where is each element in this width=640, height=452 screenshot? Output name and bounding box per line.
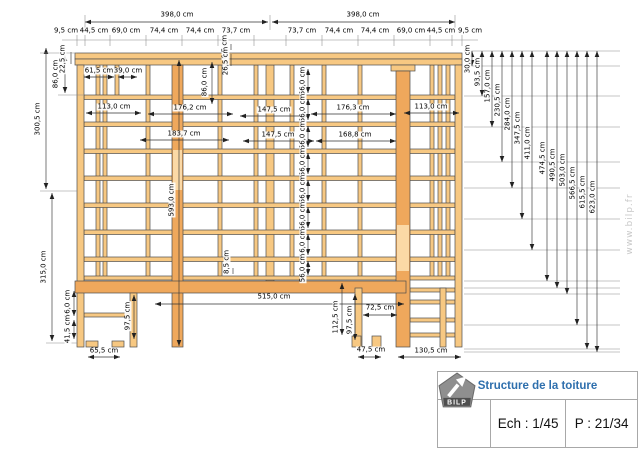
dimension-label: 30,0 cm: [465, 44, 472, 74]
dimension-label: 176,3 cm: [336, 105, 371, 112]
dimension-label: 47,5 cm: [356, 347, 386, 354]
dimension-label: 97,5 cm: [347, 305, 354, 335]
dimension-label: 69,0 cm: [396, 28, 426, 35]
dimension-label: 474,5 cm: [540, 141, 547, 176]
dimension-label: 44,5 cm: [426, 28, 456, 35]
scale-value: Ech : 1/45: [491, 400, 566, 447]
dimension-label: 157,0 cm: [485, 69, 492, 104]
dimension-label: 56,0 cm: [300, 174, 307, 204]
dimension-label: 593,0 cm: [169, 183, 176, 218]
dimension-label: 22,5 cm: [60, 44, 67, 74]
dimension-label: 86,0 cm: [53, 59, 60, 89]
title-block-row: BILP Ech : 1/45 P : 21/34: [438, 400, 637, 447]
dimension-label: 130,5 cm: [414, 348, 449, 355]
dimension-label: 315,0 cm: [41, 250, 48, 285]
dimension-label: 300,5 cm: [35, 102, 42, 137]
dimension-label: 56,0 cm: [300, 66, 307, 96]
dimension-label: 39,0 cm: [113, 68, 143, 75]
dimension-label: 168,8 cm: [338, 132, 373, 139]
dimension-label: 56,0 cm: [300, 253, 307, 283]
title-block: Structure de la toiture BILP Ech : 1/45 …: [437, 371, 638, 448]
dimension-label: 398,0 cm: [160, 12, 195, 19]
dimension-label: 74,4 cm: [149, 28, 179, 35]
dimension-label: 176,2 cm: [173, 105, 208, 112]
dimension-label: 73,7 cm: [287, 28, 317, 35]
dimension-label: 72,5 cm: [365, 305, 395, 312]
dimension-label: 69,0 cm: [111, 28, 141, 35]
dimension-label: 65,5 cm: [89, 348, 119, 355]
bilp-logo: BILP: [438, 400, 491, 447]
dimension-label: 503,0 cm: [560, 153, 567, 188]
dimension-label: 56,0 cm: [300, 120, 307, 150]
dimension-label: 56,0 cm: [300, 147, 307, 177]
dimension-label: 490,5 cm: [550, 148, 557, 183]
dimension-label: 623,0 cm: [590, 180, 597, 215]
dimension-label: 56,0 cm: [300, 93, 307, 123]
dimension-label: 515,0 cm: [257, 294, 292, 301]
watermark-text: www.bilp.fr: [625, 193, 635, 254]
dimension-label: 183,7 cm: [167, 131, 202, 138]
dimension-label: 8,5 cm: [224, 249, 231, 275]
dimension-label: 74,4 cm: [324, 28, 354, 35]
dimension-label: 230,5 cm: [495, 83, 502, 118]
page-number: P : 21/34: [566, 400, 637, 447]
dimension-label: 615,5 cm: [580, 175, 587, 210]
dimension-label: 41,5 cm: [65, 314, 72, 344]
dimension-label: 113,0 cm: [97, 104, 132, 111]
dimension-label: 44,5 cm: [79, 28, 109, 35]
bilp-logo-text: BILP: [447, 400, 467, 407]
dimension-label: 9,5 cm: [53, 28, 79, 35]
dimension-label: 56,0 cm: [300, 201, 307, 231]
dimension-label: 147,5 cm: [257, 107, 292, 114]
dimension-label: 74,4 cm: [185, 28, 215, 35]
dimension-label: 97,5 cm: [125, 301, 132, 331]
bilp-logo-icon: BILP: [438, 372, 476, 408]
dimension-label: 112,5 cm: [333, 300, 340, 335]
dimension-label: 566,5 cm: [570, 166, 577, 201]
dimension-label: 74,4 cm: [360, 28, 390, 35]
roof-structure-plan-page: 398,0 cm398,0 cm9,5 cm44,5 cm69,0 cm74,4…: [0, 0, 640, 452]
dimension-label: 284,0 cm: [505, 97, 512, 132]
dimension-label: 26,5 cm: [223, 46, 230, 76]
dimension-label: 147,5 cm: [261, 132, 296, 139]
dimension-label: 9,5 cm: [457, 28, 483, 35]
dimension-label: 113,0 cm: [414, 104, 449, 111]
dimension-label: 86,0 cm: [202, 67, 209, 97]
dimension-label: 347,5 cm: [515, 111, 522, 146]
dimension-label: 61,5 cm: [84, 68, 114, 75]
dimension-label: 93,5 cm: [475, 57, 482, 87]
dimension-label: 411,0 cm: [525, 126, 532, 161]
dimension-label: 398,0 cm: [346, 12, 381, 19]
